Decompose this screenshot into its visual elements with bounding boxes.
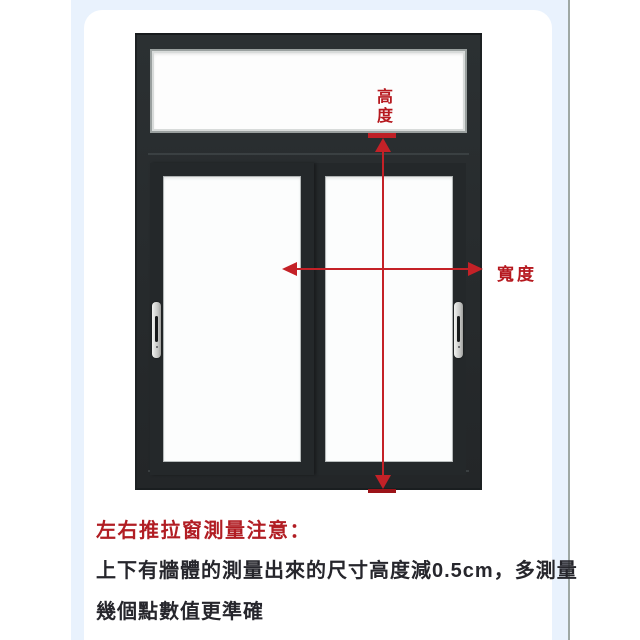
width-label: 寬度 [497,260,537,285]
arrow-right-icon [468,262,483,276]
note-line-1: 上下有牆體的測量出來的尺寸高度減0.5cm，多測量 [96,554,578,583]
height-dimension-line [382,146,384,478]
left-handle-dot [156,346,158,348]
page: 高度 寬度 左右推拉窗測量注意： 上下有牆體的測量出來的尺寸高度減0.5cm，多… [0,0,640,640]
left-sash-glass [163,176,301,462]
width-dimension-line [294,268,472,270]
window-diagram [135,33,482,490]
mid-rail-seam [148,153,469,155]
transom-glass [150,49,467,133]
right-handle-icon [454,302,463,358]
note-heading: 左右推拉窗測量注意： [96,514,311,543]
right-sash-glass [325,176,453,462]
height-label: 高度 [372,88,392,126]
right-handle-dot [458,346,460,348]
left-handle-slot [155,316,158,342]
note-line-2: 幾個點數值更準確 [96,595,264,624]
right-sash [312,163,466,475]
arrow-up-icon [375,138,391,152]
height-dimension-bottom-cap [368,489,396,493]
arrow-down-icon [375,475,391,489]
page-divider-line [568,0,570,640]
left-handle-icon [152,302,161,358]
left-sash [150,163,314,475]
right-handle-slot [457,316,460,342]
arrow-left-icon [282,262,297,276]
